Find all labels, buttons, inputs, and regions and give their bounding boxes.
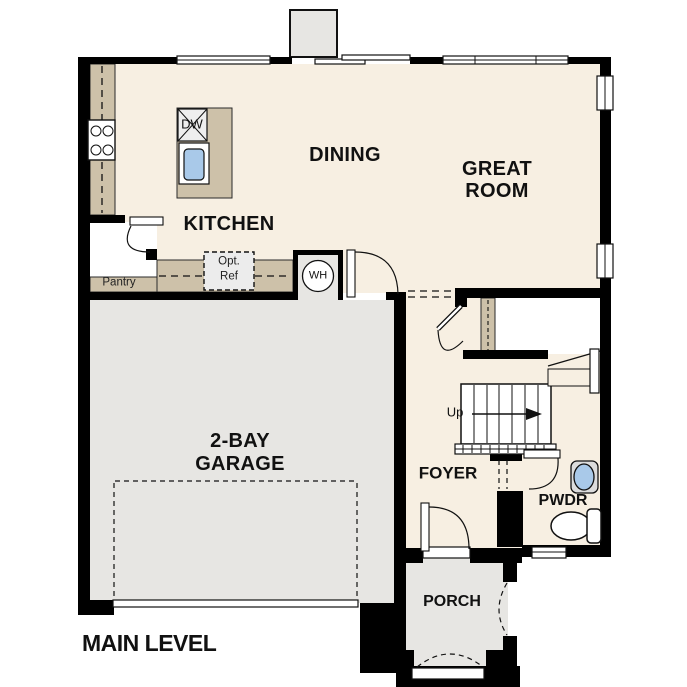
page-title: MAIN LEVEL — [82, 632, 216, 655]
wall-segment — [270, 57, 292, 64]
wall-kitchen-garage — [78, 292, 295, 300]
floor-plan-graphics — [0, 0, 687, 687]
porch-sill — [412, 668, 484, 679]
room-label-porch: PORCH — [423, 594, 481, 610]
optional-fridge-label: Opt. — [218, 256, 240, 268]
porch-post — [503, 551, 517, 582]
wall-corner — [78, 600, 114, 615]
wall-greatroom-bottom — [455, 288, 610, 298]
wall-stub — [455, 298, 467, 307]
room-label-powder: PWDR — [539, 493, 588, 509]
stairwell-void — [495, 298, 602, 354]
sliding-door-panel — [342, 55, 410, 60]
room-label-dining: DINING — [309, 145, 381, 165]
room-label-garage: GARAGE — [195, 454, 285, 474]
wall-stub — [146, 249, 157, 260]
porch-post — [486, 650, 508, 668]
front-door-leaf — [421, 503, 429, 551]
wall-garage-porch — [360, 603, 406, 673]
room-label-kitchen: KITCHEN — [184, 214, 275, 234]
room-label-great-room: ROOM — [465, 181, 528, 201]
wall-segment — [410, 57, 444, 64]
powder-door-leaf — [524, 450, 560, 458]
toilet-bowl — [551, 512, 591, 540]
garage-entry-door-leaf — [347, 250, 355, 297]
room-label-foyer: FOYER — [419, 465, 478, 482]
water-heater-label: WH — [309, 271, 327, 282]
chimney — [290, 10, 337, 57]
wall-foyer-powder — [497, 491, 523, 547]
floor-plan: DINING GREAT ROOM KITCHEN 2-BAY GARAGE F… — [0, 0, 687, 687]
kitchen-sink-basin — [184, 149, 204, 180]
wall-segment — [78, 57, 178, 64]
room-label-garage: 2-BAY — [210, 431, 270, 451]
dishwasher-label: DW — [181, 118, 203, 131]
room-label-great-room: GREAT — [462, 159, 532, 179]
wall-right-exterior — [600, 57, 611, 557]
stair-upper-rail — [590, 349, 599, 393]
optional-fridge-label: Ref — [220, 271, 238, 283]
toilet-tank — [587, 509, 601, 543]
wall-pantry-top — [78, 215, 125, 223]
stair-direction-label: Up — [447, 406, 464, 419]
wall-stair-top — [463, 350, 548, 359]
wall-foyer-bottom-left — [394, 548, 423, 563]
stair-upper-run — [548, 369, 592, 386]
room-label-pantry: Pantry — [102, 277, 135, 289]
front-door-sill — [423, 547, 470, 558]
garage-door-sill — [113, 600, 358, 607]
floor-fills — [90, 10, 602, 668]
powder-sink-basin — [574, 464, 594, 490]
pantry-door-leaf — [130, 217, 163, 225]
